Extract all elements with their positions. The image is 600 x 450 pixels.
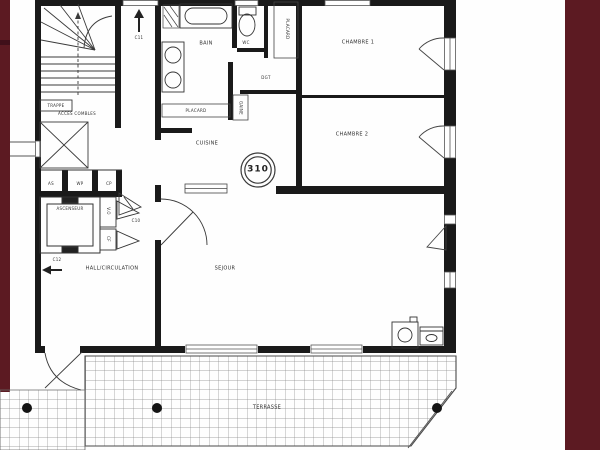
hall-terrace-door bbox=[45, 352, 82, 390]
window-swing-arcs bbox=[419, 38, 446, 250]
room-label-terrasse: TERRASSE bbox=[253, 406, 281, 411]
oven-icon bbox=[420, 327, 443, 345]
room-label-sejour: SEJOUR bbox=[215, 267, 236, 272]
room-label-dgt: DGT bbox=[261, 76, 270, 80]
label-acces-combles: ACCES COMBLES bbox=[58, 112, 96, 116]
gaine-label: GAINE bbox=[239, 101, 243, 115]
double-washbasin-icon bbox=[162, 42, 184, 92]
terrace bbox=[0, 356, 456, 450]
mark-c11: C11 bbox=[135, 36, 144, 40]
label-vide-ordures: V.O bbox=[106, 207, 110, 215]
label-hall-circulation: HALL/CIRCULATION bbox=[86, 267, 139, 272]
closet-label-cuisine: PLACARD bbox=[186, 109, 207, 113]
facade-lines bbox=[10, 142, 35, 156]
duct-label-cp: CP bbox=[106, 182, 112, 186]
walls bbox=[35, 0, 456, 353]
closet-label-entree: PLACARD bbox=[285, 19, 289, 40]
terrace-column bbox=[432, 403, 442, 413]
room-label-chambre1: CHAMBRE 1 bbox=[342, 41, 375, 46]
room-label-chambre2: CHAMBRE 2 bbox=[336, 133, 369, 138]
label-cf: CF bbox=[106, 236, 110, 242]
washing-machine-icon bbox=[392, 317, 418, 348]
room-label-bain: BAIN bbox=[199, 42, 212, 47]
terrace-column bbox=[152, 403, 162, 413]
floorplan-page: BAIN WC PLACARD CHAMBRE 1 CHAMBRE 2 DGT … bbox=[0, 0, 600, 450]
terrace-column bbox=[22, 403, 32, 413]
floorplan-linework bbox=[0, 0, 600, 450]
unit-number: 310 bbox=[247, 166, 269, 175]
bathtub-icon bbox=[180, 4, 232, 28]
duct-label-wp: WP bbox=[77, 182, 84, 186]
label-trappe: TRAPPE bbox=[48, 104, 65, 108]
staircase bbox=[41, 4, 115, 95]
toilet-icon bbox=[239, 7, 256, 36]
duct-label-as: AS bbox=[48, 182, 54, 186]
mark-c10: C10 bbox=[132, 219, 141, 223]
up-arrow-c11 bbox=[134, 9, 144, 32]
bath-mat-hatch bbox=[163, 5, 179, 28]
room-label-wc: WC bbox=[242, 41, 249, 45]
left-arrow-c12 bbox=[42, 266, 62, 275]
mark-c12: C12 bbox=[53, 258, 62, 262]
windows bbox=[36, 1, 456, 354]
label-ascenseur: ASCENSEUR bbox=[56, 207, 83, 211]
room-label-cuisine: CUISINE bbox=[196, 142, 218, 147]
